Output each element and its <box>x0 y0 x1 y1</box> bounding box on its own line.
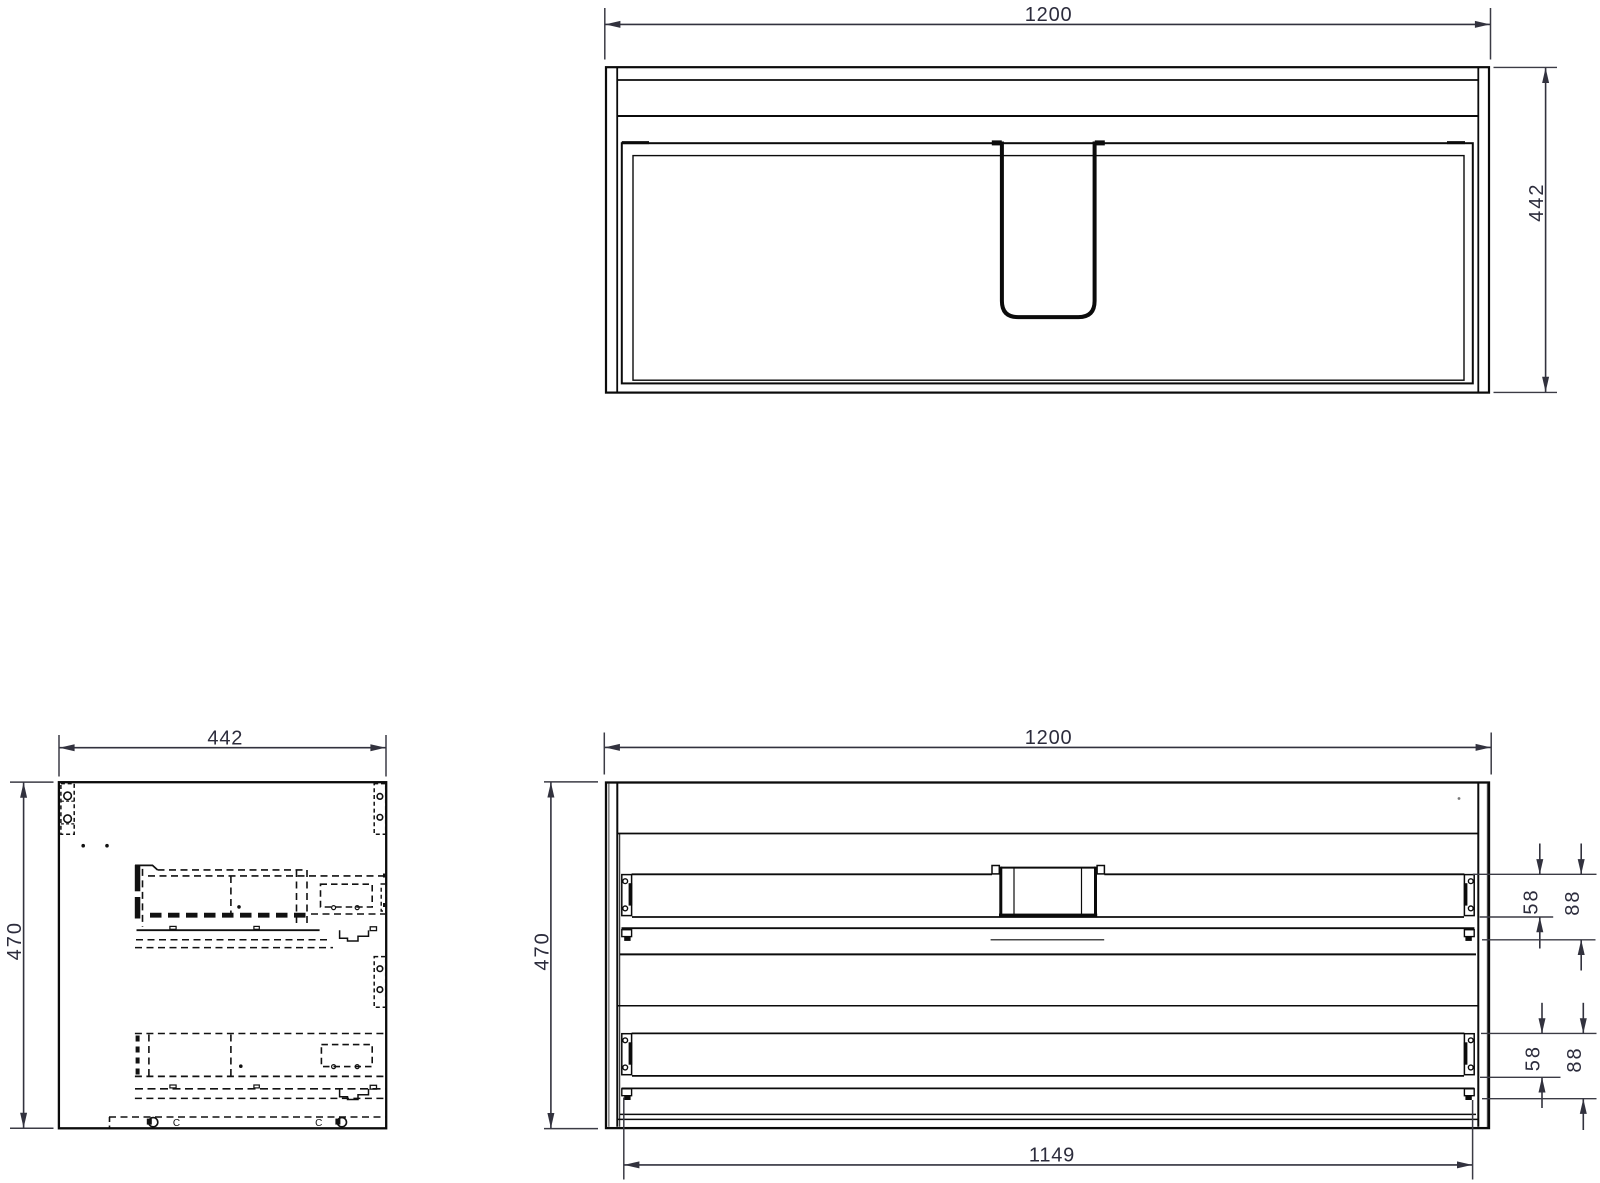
svg-text:1200: 1200 <box>1025 727 1073 749</box>
svg-text:470: 470 <box>532 931 554 970</box>
svg-text:C: C <box>173 1118 180 1129</box>
svg-text:1200: 1200 <box>1025 4 1073 26</box>
svg-text:442: 442 <box>207 728 243 750</box>
svg-text:88: 88 <box>1564 1046 1586 1072</box>
svg-text:1149: 1149 <box>1029 1145 1075 1167</box>
svg-text:58: 58 <box>1523 1045 1545 1071</box>
svg-text:58: 58 <box>1520 888 1542 914</box>
svg-text:C: C <box>315 1118 322 1129</box>
svg-text:470: 470 <box>4 921 26 960</box>
svg-text:88: 88 <box>1562 889 1584 915</box>
svg-text:442: 442 <box>1526 183 1548 222</box>
